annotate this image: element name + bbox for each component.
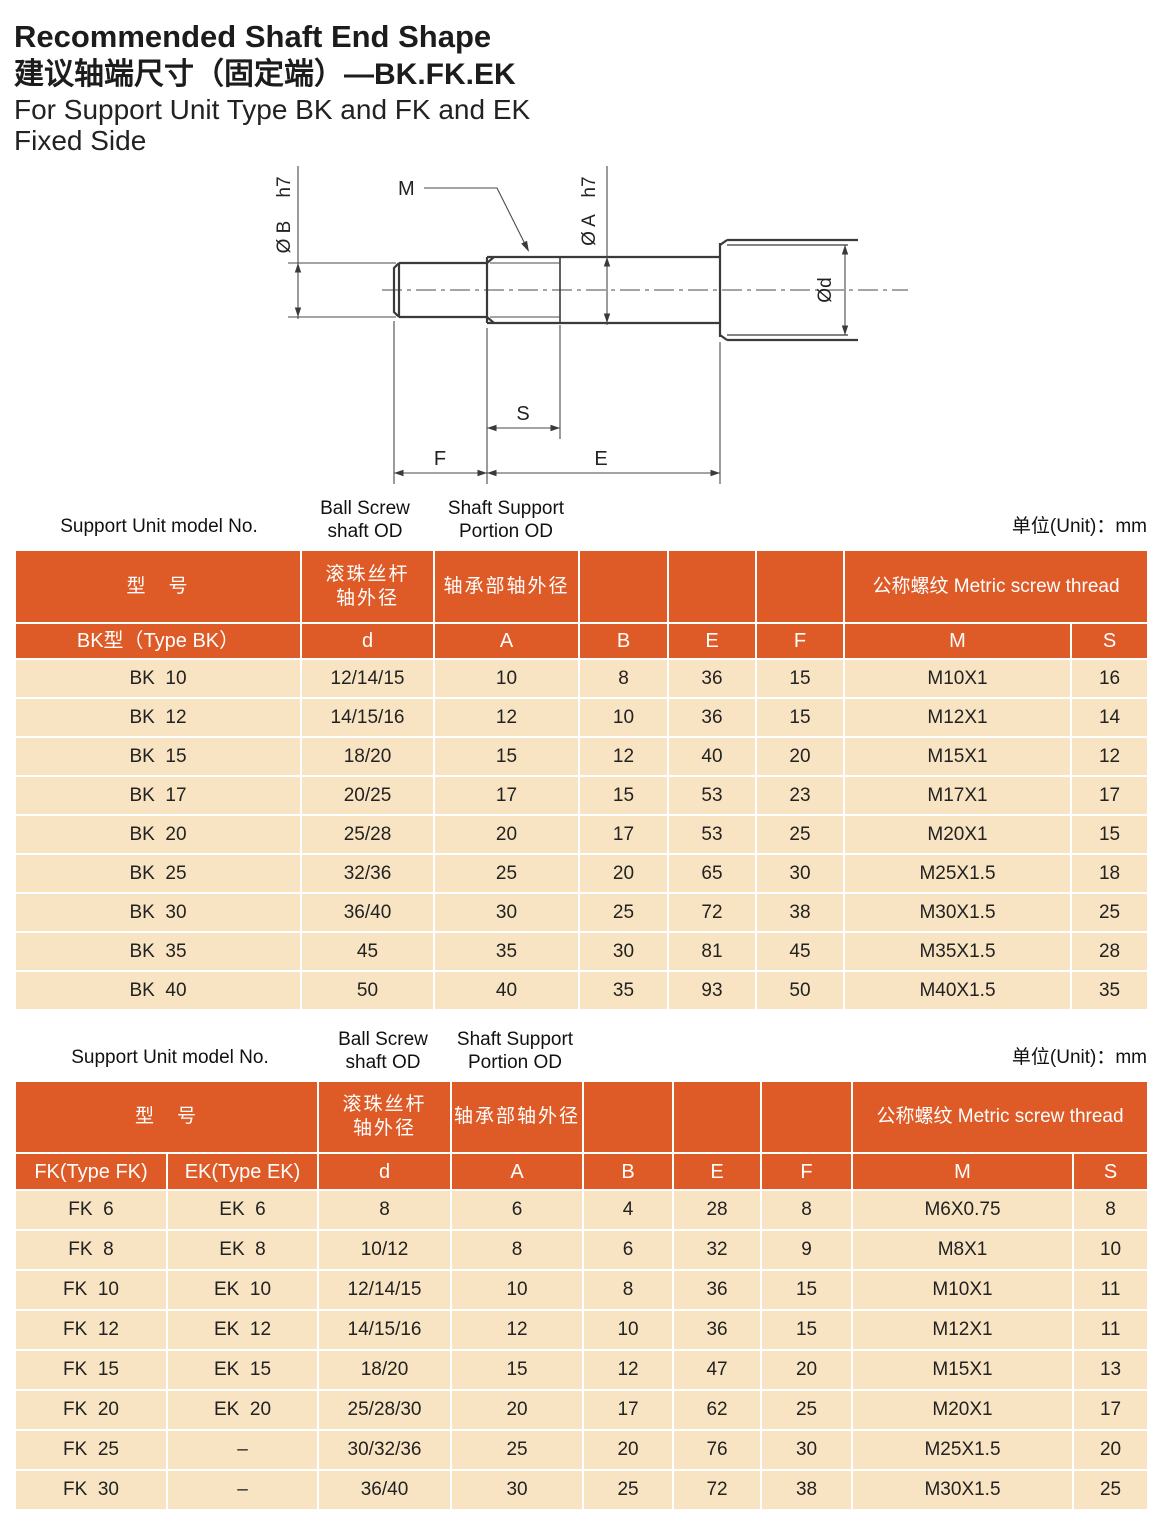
cell-f: 15 [756,659,844,698]
bk-table-row: BK 10 12/14/15 10 8 36 15 M10X1 16 [15,659,1148,698]
fkek-subheader-m: M [852,1153,1073,1190]
bk-caption-support-od: Shaft Support Portion OD [436,497,576,543]
dim-label-m: M [398,178,415,200]
cell-d: 25/28 [301,815,434,854]
cell-b: 12 [583,1350,673,1390]
cell-model: BK 17 [15,776,301,815]
cell-a: 20 [434,815,579,854]
cell-b: 8 [579,659,668,698]
bk-header-support-cn: 轴承部轴外径 [434,550,579,623]
cell-b: 10 [579,698,668,737]
cell-m: M20X1 [852,1390,1073,1430]
cell-e: 47 [673,1350,761,1390]
fkek-subheader-ek: EK(Type EK) [167,1153,318,1190]
fkek-subheader-f: F [761,1153,852,1190]
bk-header-thread: 公称螺纹 Metric screw thread [844,550,1148,623]
fkek-subheader-s: S [1073,1153,1148,1190]
cell-a: 35 [434,932,579,971]
cell-a: 25 [434,854,579,893]
page-subtitle-line2: Fixed Side [14,125,914,156]
cell-m: M10X1 [844,659,1071,698]
cell-m: M12X1 [852,1310,1073,1350]
cell-d: 18/20 [301,737,434,776]
dim-label-h7-a: h7 [579,176,600,197]
cell-a: 6 [451,1190,583,1230]
cell-a: 10 [451,1270,583,1310]
fkek-subheader-d: d [318,1153,451,1190]
bk-subheader-s: S [1071,623,1148,659]
bk-table-row: BK 40 50 40 35 93 50 M40X1.5 35 [15,971,1148,1010]
dim-label-h7-b: h7 [274,176,295,197]
page-title-cn: 建议轴端尺寸（固定端）—BK.FK.EK [14,56,914,94]
cell-a: 8 [451,1230,583,1270]
cell-m: M17X1 [844,776,1071,815]
cell-s: 25 [1071,893,1148,932]
cell-f: 9 [761,1230,852,1270]
cell-s: 17 [1073,1390,1148,1430]
fkek-header-empty-b [583,1081,673,1153]
bk-subheader-f: F [756,623,844,659]
cell-b: 25 [583,1470,673,1510]
cell-a: 25 [451,1430,583,1470]
bk-caption-ballscrew-od: Ball Screw shaft OD [300,497,430,543]
cell-b: 17 [583,1390,673,1430]
cell-e: 62 [673,1390,761,1430]
cell-e: 36 [668,659,756,698]
cell-s: 15 [1071,815,1148,854]
cell-e: 65 [668,854,756,893]
fkek-caption-ballscrew-od: Ball Screw shaft OD [318,1028,448,1074]
page-subtitle-line1: For Support Unit Type BK and FK and EK [14,94,914,125]
cell-s: 18 [1071,854,1148,893]
bk-subheader-type: BK型（Type BK） [15,623,301,659]
fkek-table-row: FK 12 EK 12 14/15/16 12 10 36 15 M12X1 1… [15,1310,1148,1350]
cell-ek-model: EK 20 [167,1390,318,1430]
cell-f: 20 [761,1350,852,1390]
cell-b: 17 [579,815,668,854]
cell-d: 12/14/15 [318,1270,451,1310]
cell-d: 36/40 [301,893,434,932]
cell-e: 72 [668,893,756,932]
bk-subheader-b: B [579,623,668,659]
cell-b: 6 [583,1230,673,1270]
page-title: Recommended Shaft End Shape [14,18,914,56]
bk-header-empty-e [668,550,756,623]
fkek-table-row: FK 15 EK 15 18/20 15 12 47 20 M15X1 13 [15,1350,1148,1390]
cell-b: 25 [579,893,668,932]
cell-m: M15X1 [844,737,1071,776]
fkek-table-body: FK 6 EK 6 8 6 4 28 8 M6X0.75 8 FK 8 EK 8… [15,1190,1148,1510]
cell-fk-model: FK 20 [15,1390,167,1430]
bk-header-empty-b [579,550,668,623]
cell-m: M40X1.5 [844,971,1071,1010]
fkek-header-empty-f [761,1081,852,1153]
cell-e: 81 [668,932,756,971]
cell-d: 50 [301,971,434,1010]
cell-s: 10 [1073,1230,1148,1270]
bk-table-row: BK 25 32/36 25 20 65 30 M25X1.5 18 [15,854,1148,893]
title-block: Recommended Shaft End Shape 建议轴端尺寸（固定端）—… [14,18,914,156]
cell-s: 17 [1071,776,1148,815]
fkek-table-row: FK 20 EK 20 25/28/30 20 17 62 25 M20X1 1… [15,1390,1148,1430]
cell-b: 20 [583,1430,673,1470]
cell-d: 45 [301,932,434,971]
cell-d: 30/32/36 [318,1430,451,1470]
fkek-header-empty-e [673,1081,761,1153]
cell-ek-model: – [167,1470,318,1510]
bk-caption-unit: 单位(Unit)：mm [847,515,1147,538]
fkek-header-model-cn: 型 号 [15,1081,318,1153]
bk-table-row: BK 30 36/40 30 25 72 38 M30X1.5 25 [15,893,1148,932]
fkek-table-row: FK 25 – 30/32/36 25 20 76 30 M25X1.5 20 [15,1430,1148,1470]
cell-f: 30 [756,854,844,893]
cell-ek-model: EK 6 [167,1190,318,1230]
fkek-table-row: FK 8 EK 8 10/12 8 6 32 9 M8X1 10 [15,1230,1148,1270]
cell-d: 12/14/15 [301,659,434,698]
cell-s: 25 [1073,1470,1148,1510]
cell-a: 15 [451,1350,583,1390]
bk-subheader-d: d [301,623,434,659]
cell-e: 36 [668,698,756,737]
bk-subheader-a: A [434,623,579,659]
cell-a: 17 [434,776,579,815]
cell-fk-model: FK 6 [15,1190,167,1230]
cell-a: 15 [434,737,579,776]
fkek-header-support-cn: 轴承部轴外径 [451,1081,583,1153]
cell-s: 14 [1071,698,1148,737]
cell-f: 20 [756,737,844,776]
fkek-subheader-e: E [673,1153,761,1190]
shaft-end-drawing: Ø B h7 Ø A h7 Ød M S [0,158,1160,508]
cell-model: BK 35 [15,932,301,971]
fkek-table-row: FK 6 EK 6 8 6 4 28 8 M6X0.75 8 [15,1190,1148,1230]
cell-m: M15X1 [852,1350,1073,1390]
cell-e: 53 [668,776,756,815]
cell-model: BK 10 [15,659,301,698]
cell-b: 12 [579,737,668,776]
cell-m: M20X1 [844,815,1071,854]
fkek-header-ballscrew-cn: 滚珠丝杆 轴外径 [318,1081,451,1153]
bk-table-row: BK 15 18/20 15 12 40 20 M15X1 12 [15,737,1148,776]
cell-e: 36 [673,1310,761,1350]
bk-table-body: BK 10 12/14/15 10 8 36 15 M10X1 16 BK 12… [15,659,1148,1010]
cell-m: M25X1.5 [852,1430,1073,1470]
bk-caption-model-no: Support Unit model No. [14,515,304,538]
cell-b: 4 [583,1190,673,1230]
cell-f: 23 [756,776,844,815]
cell-s: 20 [1073,1430,1148,1470]
cell-f: 25 [756,815,844,854]
cell-f: 38 [756,893,844,932]
cell-s: 16 [1071,659,1148,698]
cell-f: 50 [756,971,844,1010]
cell-b: 8 [583,1270,673,1310]
dim-label-e: E [594,448,607,470]
fkek-table-row: FK 30 – 36/40 30 25 72 38 M30X1.5 25 [15,1470,1148,1510]
cell-a: 20 [451,1390,583,1430]
cell-f: 30 [761,1430,852,1470]
bk-spec-table: 型 号 滚珠丝杆 轴外径 轴承部轴外径 公称螺纹 Metric screw th… [14,549,1149,1011]
cell-ek-model: – [167,1430,318,1470]
cell-e: 28 [673,1190,761,1230]
cell-s: 11 [1073,1270,1148,1310]
cell-e: 76 [673,1430,761,1470]
dimension-dia-a [604,166,610,325]
fkek-spec-table: 型 号 滚珠丝杆 轴外径 轴承部轴外径 公称螺纹 Metric screw th… [14,1080,1149,1511]
cell-m: M30X1.5 [852,1470,1073,1510]
cell-s: 8 [1073,1190,1148,1230]
dim-label-dia-a: Ø A [579,214,600,246]
cell-m: M12X1 [844,698,1071,737]
cell-f: 45 [756,932,844,971]
cell-e: 93 [668,971,756,1010]
cell-f: 38 [761,1470,852,1510]
cell-f: 25 [761,1390,852,1430]
cell-d: 36/40 [318,1470,451,1510]
cell-d: 10/12 [318,1230,451,1270]
cell-ek-model: EK 12 [167,1310,318,1350]
bk-header-model-cn: 型 号 [15,550,301,623]
cell-model: BK 15 [15,737,301,776]
fkek-subheader-b: B [583,1153,673,1190]
bk-header-empty-f [756,550,844,623]
cell-e: 32 [673,1230,761,1270]
fkek-subheader-fk: FK(Type FK) [15,1153,167,1190]
cell-model: BK 30 [15,893,301,932]
cell-model: BK 25 [15,854,301,893]
cell-s: 28 [1071,932,1148,971]
cell-fk-model: FK 30 [15,1470,167,1510]
cell-fk-model: FK 8 [15,1230,167,1270]
cell-m: M6X0.75 [852,1190,1073,1230]
cell-a: 30 [434,893,579,932]
fkek-caption-support-od: Shaft Support Portion OD [445,1028,585,1074]
dim-label-dia-d: Ød [815,277,836,302]
cell-f: 15 [761,1270,852,1310]
fkek-caption-unit: 单位(Unit)：mm [847,1046,1147,1069]
cell-d: 25/28/30 [318,1390,451,1430]
dim-label-s: S [516,403,529,425]
cell-d: 32/36 [301,854,434,893]
cell-b: 35 [579,971,668,1010]
cell-m: M35X1.5 [844,932,1071,971]
cell-s: 11 [1073,1310,1148,1350]
cell-b: 30 [579,932,668,971]
fkek-subheader-a: A [451,1153,583,1190]
cell-a: 12 [451,1310,583,1350]
bk-table-row: BK 35 45 35 30 81 45 M35X1.5 28 [15,932,1148,971]
cell-d: 14/15/16 [318,1310,451,1350]
cell-fk-model: FK 10 [15,1270,167,1310]
cell-d: 8 [318,1190,451,1230]
cell-f: 15 [756,698,844,737]
bk-table-row: BK 17 20/25 17 15 53 23 M17X1 17 [15,776,1148,815]
dim-label-dia-b: Ø B [274,221,295,254]
fkek-table-row: FK 10 EK 10 12/14/15 10 8 36 15 M10X1 11 [15,1270,1148,1310]
cell-b: 20 [579,854,668,893]
cell-s: 12 [1071,737,1148,776]
fkek-header-thread: 公称螺纹 Metric screw thread [852,1081,1148,1153]
cell-s: 13 [1073,1350,1148,1390]
cell-fk-model: FK 15 [15,1350,167,1390]
cell-d: 14/15/16 [301,698,434,737]
cell-fk-model: FK 12 [15,1310,167,1350]
cell-f: 15 [761,1310,852,1350]
bk-table-row: BK 12 14/15/16 12 10 36 15 M12X1 14 [15,698,1148,737]
cell-a: 40 [434,971,579,1010]
bk-header-ballscrew-cn: 滚珠丝杆 轴外径 [301,550,434,623]
bk-table-row: BK 20 25/28 20 17 53 25 M20X1 15 [15,815,1148,854]
cell-m: M8X1 [852,1230,1073,1270]
cell-s: 35 [1071,971,1148,1010]
cell-ek-model: EK 10 [167,1270,318,1310]
cell-model: BK 20 [15,815,301,854]
dimension-dia-b [288,166,396,319]
cell-model: BK 12 [15,698,301,737]
cell-model: BK 40 [15,971,301,1010]
cell-m: M10X1 [852,1270,1073,1310]
cell-a: 12 [434,698,579,737]
cell-m: M25X1.5 [844,854,1071,893]
cell-a: 30 [451,1470,583,1510]
cell-b: 15 [579,776,668,815]
cell-e: 53 [668,815,756,854]
cell-e: 72 [673,1470,761,1510]
cell-e: 40 [668,737,756,776]
cell-b: 10 [583,1310,673,1350]
cell-e: 36 [673,1270,761,1310]
cell-ek-model: EK 8 [167,1230,318,1270]
cell-m: M30X1.5 [844,893,1071,932]
thread-leader [424,188,529,252]
dim-label-f: F [434,448,446,470]
bk-subheader-e: E [668,623,756,659]
cell-d: 18/20 [318,1350,451,1390]
cell-fk-model: FK 25 [15,1430,167,1470]
cell-ek-model: EK 15 [167,1350,318,1390]
bk-subheader-m: M [844,623,1071,659]
fkek-caption-model-no: Support Unit model No. [24,1046,316,1069]
cell-a: 10 [434,659,579,698]
cell-d: 20/25 [301,776,434,815]
cell-f: 8 [761,1190,852,1230]
